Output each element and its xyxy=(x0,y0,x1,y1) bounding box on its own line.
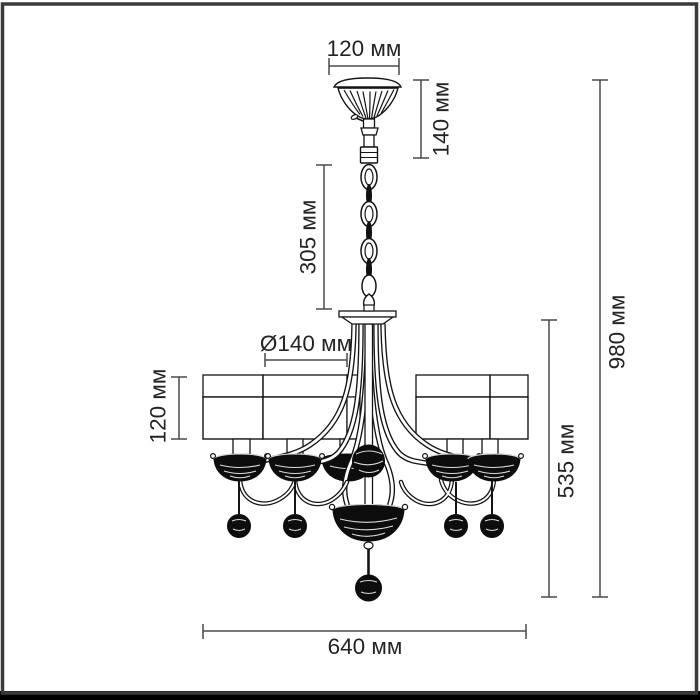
shade-body xyxy=(490,397,528,439)
scroll-left-inner xyxy=(295,479,347,504)
canopy-bell xyxy=(338,88,398,119)
dim-label-total-width: 640 мм xyxy=(328,634,403,659)
center-ball xyxy=(353,445,385,477)
connector-block xyxy=(361,147,378,163)
bowl-knob xyxy=(364,542,373,549)
shade-band xyxy=(490,375,528,397)
screenshot-root: 120 мм 140 мм 305 мм Ø140 мм 120 мм 535 … xyxy=(0,0,700,700)
dimension-annotations: 120 мм 140 мм 305 мм Ø140 мм 120 мм 535 … xyxy=(146,36,630,659)
dim-chain-length: 305 мм xyxy=(296,165,333,309)
dim-canopy-drop: 140 мм xyxy=(413,80,454,158)
finial-rod xyxy=(367,549,370,575)
shade-body xyxy=(203,397,263,439)
chandelier-technical-drawing: 120 мм 140 мм 305 мм Ø140 мм 120 мм 535 … xyxy=(0,0,700,700)
dim-canopy-width: 120 мм xyxy=(327,36,402,75)
pendant-ball xyxy=(284,515,307,538)
canopy-collar xyxy=(361,128,378,135)
cup-ear xyxy=(320,454,325,459)
shade-right-middle xyxy=(416,375,490,439)
dim-label-shade-height: 120 мм xyxy=(146,369,171,444)
chain xyxy=(361,165,377,312)
pendant-ball xyxy=(445,515,468,538)
dim-label-shade-diameter: Ø140 мм xyxy=(260,331,352,356)
chain-collar xyxy=(364,305,374,311)
finial-ball xyxy=(356,575,382,601)
shade-band xyxy=(416,375,490,397)
canopy-stem xyxy=(364,135,374,147)
plate-taper xyxy=(342,317,393,324)
canopy-disc xyxy=(334,78,401,87)
dim-shade-height: 120 мм xyxy=(146,369,188,444)
ceiling-canopy xyxy=(334,78,401,163)
dim-label-chain-length: 305 мм xyxy=(296,200,321,275)
shade-left-outer xyxy=(203,375,263,439)
shade-left-middle xyxy=(263,375,347,439)
dim-total-height: 980 мм xyxy=(592,80,630,597)
dim-total-width: 640 мм xyxy=(203,624,526,659)
cup-ear xyxy=(423,454,428,459)
dim-body-height: 535 мм xyxy=(541,320,579,597)
scroll-left-outer xyxy=(240,479,295,504)
canopy-neck xyxy=(364,119,375,128)
dim-label-canopy-width: 120 мм xyxy=(327,36,402,61)
cup xyxy=(468,454,523,481)
shade-body xyxy=(416,397,490,439)
center-rod xyxy=(365,324,373,511)
pendant-ball xyxy=(228,515,251,538)
cup-ear xyxy=(519,454,524,459)
dim-label-body-height: 535 мм xyxy=(554,424,579,499)
center-bowl xyxy=(329,504,407,541)
dim-line xyxy=(171,377,187,439)
cup xyxy=(266,454,325,481)
dim-label-total-height: 980 мм xyxy=(605,295,630,370)
top-plate xyxy=(339,311,396,324)
dim-line xyxy=(413,80,429,158)
plate-bar xyxy=(339,311,396,317)
cup-ear xyxy=(211,454,216,459)
dim-label-canopy-drop: 140 мм xyxy=(429,82,454,157)
bowl-ear xyxy=(402,504,407,509)
cup-ear xyxy=(266,454,271,459)
cup xyxy=(211,454,270,481)
bowl-ear xyxy=(329,504,334,509)
pendant-ball xyxy=(481,515,504,538)
dim-shade-diameter: Ø140 мм xyxy=(260,331,352,367)
shade-band xyxy=(203,375,263,397)
shade-right-outer xyxy=(490,375,528,439)
shade-band xyxy=(263,375,347,397)
